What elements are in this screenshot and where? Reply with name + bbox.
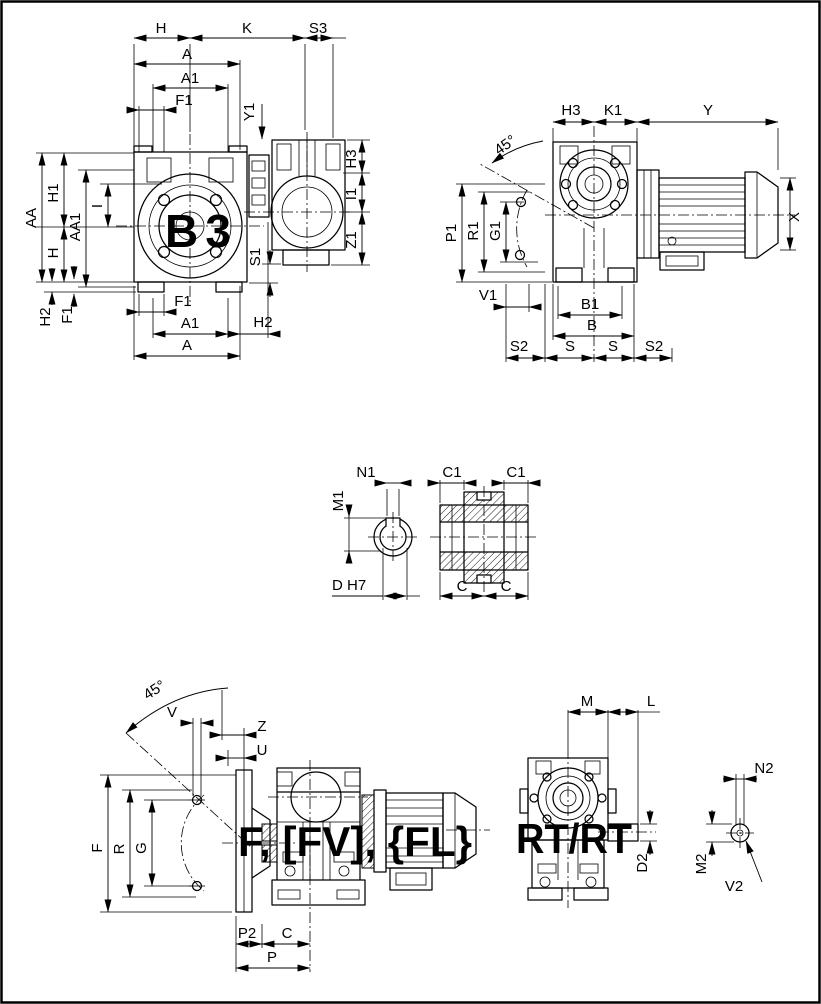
dim-label-r1: R1 bbox=[465, 221, 482, 240]
dim-label-g1: G1 bbox=[487, 221, 504, 241]
drawing-page: B3 H K S3 A A1 F1 bbox=[0, 0, 821, 1004]
dim-label-r: R bbox=[111, 843, 128, 854]
dim-label-h3-right: H3 bbox=[343, 149, 360, 168]
dim-label-k1: K1 bbox=[604, 102, 622, 119]
dim-label-i1: I1 bbox=[343, 188, 360, 201]
dim-label-a1-bottom: A1 bbox=[181, 315, 199, 332]
dim-label-c-left: C bbox=[457, 578, 468, 595]
dim-label-n1: N1 bbox=[356, 464, 375, 481]
dim-label-d-h7: D H7 bbox=[332, 577, 366, 594]
dim-label-y1: Y1 bbox=[241, 103, 258, 121]
dim-label-m2: M2 bbox=[693, 854, 710, 875]
dim-label-x: X bbox=[786, 212, 803, 222]
variant-tag-rt: RT/RT bbox=[516, 815, 632, 862]
dim-label-c-right: C bbox=[501, 578, 512, 595]
dim-label-f: F bbox=[89, 843, 106, 852]
dim-label-aa1: AA1 bbox=[67, 213, 84, 241]
dim-label-aa: AA bbox=[23, 208, 40, 228]
dim-label-a-top: A bbox=[182, 46, 192, 63]
dim-label-s2-right: S2 bbox=[645, 338, 663, 355]
dim-label-l: L bbox=[647, 693, 655, 710]
dim-label-f1-bottom: F1 bbox=[174, 293, 192, 310]
dim-label-d2: D2 bbox=[634, 853, 651, 872]
dim-label-v1: V1 bbox=[479, 287, 497, 304]
dim-label-i: I bbox=[89, 204, 106, 208]
dim-label-h2-left: H2 bbox=[37, 307, 54, 326]
dim-label-z: Z bbox=[257, 718, 266, 735]
dim-label-n2: N2 bbox=[754, 760, 773, 777]
dim-label-s3: S3 bbox=[309, 20, 327, 37]
dim-label-g: G bbox=[133, 842, 150, 854]
dim-label-m: M bbox=[581, 693, 594, 710]
dim-label-h1: H1 bbox=[45, 183, 62, 202]
dim-label-s2-left: S2 bbox=[510, 338, 528, 355]
dim-label-b: B bbox=[587, 317, 597, 334]
dim-label-p2: P2 bbox=[238, 925, 256, 942]
dim-label-z1: Z1 bbox=[343, 231, 360, 249]
dim-label-v: V bbox=[167, 704, 177, 721]
dim-label-h3: H3 bbox=[561, 102, 580, 119]
dim-label-a-bottom: A bbox=[182, 337, 192, 354]
dim-label-c1-right: C1 bbox=[506, 464, 525, 481]
dim-label-s1: S1 bbox=[247, 248, 264, 266]
dim-label-u: U bbox=[257, 742, 268, 759]
dim-label-s-right: S bbox=[608, 338, 618, 355]
dim-label-f1-top: F1 bbox=[175, 92, 193, 109]
dim-label-y: Y bbox=[703, 102, 713, 119]
dim-label-v2: V2 bbox=[725, 878, 743, 895]
variant-tag-flange: F, [FV], {FL} bbox=[238, 818, 472, 865]
dim-label-h2-bottom: H2 bbox=[253, 314, 272, 331]
dim-label-k: K bbox=[242, 20, 252, 37]
dim-label-a1-top: A1 bbox=[181, 70, 199, 87]
dim-label-s-left: S bbox=[565, 338, 575, 355]
dim-label-f1-left: F1 bbox=[59, 306, 76, 324]
dim-label-c: C bbox=[282, 925, 293, 942]
dim-label-c1-left: C1 bbox=[442, 464, 461, 481]
technical-drawing-canvas: B3 H K S3 A A1 F1 bbox=[0, 0, 821, 1004]
dim-label-b1: B1 bbox=[581, 296, 599, 313]
variant-tag-b3: B3 bbox=[165, 205, 231, 257]
dim-label-h-left: H bbox=[45, 248, 62, 259]
dim-label-p1: P1 bbox=[443, 224, 460, 242]
dim-label-p: P bbox=[267, 949, 277, 966]
dim-label-h-top: H bbox=[156, 20, 167, 37]
dim-label-m1: M1 bbox=[330, 491, 347, 512]
